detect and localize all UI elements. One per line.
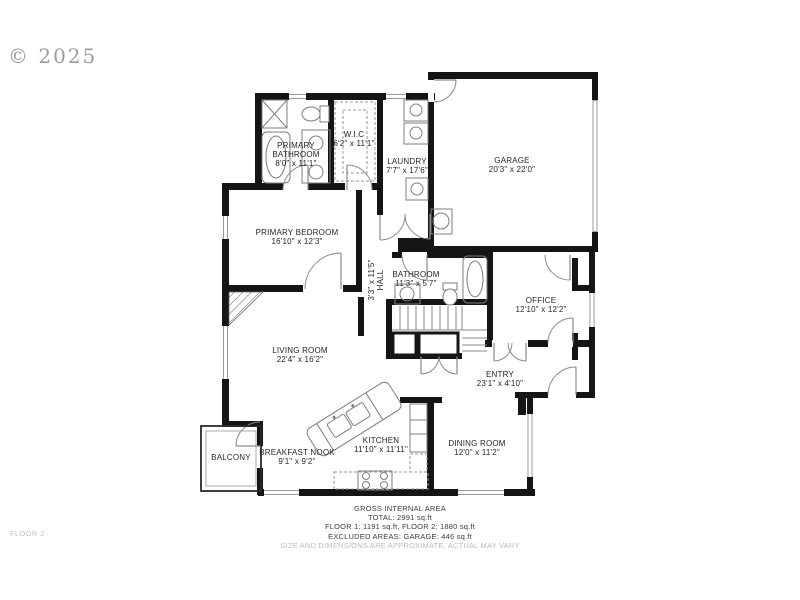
stove xyxy=(358,471,392,490)
room-label-living-room: LIVING ROOM22'4" x 16'2" xyxy=(250,346,350,364)
area-summary-total: TOTAL: 2991 sq.ft xyxy=(0,513,800,522)
area-summary-disclaimer: SIZE AND DIMENSIONS ARE APPROXIMATE, ACT… xyxy=(0,541,800,550)
window xyxy=(287,93,308,100)
window xyxy=(262,489,301,496)
window xyxy=(222,324,229,381)
area-summary-excluded: EXCLUDED AREAS: GARAGE: 446 sq.ft xyxy=(0,532,800,541)
window xyxy=(384,93,408,100)
door-garage xyxy=(428,80,456,102)
double-door-office xyxy=(492,340,528,361)
room-label-primary-bedroom: PRIMARY BEDROOM16'10" x 12'3" xyxy=(232,228,362,246)
door-primary-bedroom xyxy=(303,253,343,292)
staircase xyxy=(392,306,487,355)
door-hall-laundry xyxy=(380,214,430,240)
room-label-bathroom: BATHROOM11'3" x 5'7" xyxy=(384,270,448,288)
shower xyxy=(262,100,287,128)
room-label-wic: W.I.C6'2" x 11'1" xyxy=(319,130,389,148)
room-label-dining-room: DINING ROOM12'0" x 11'2" xyxy=(432,439,522,457)
door-office-bottom xyxy=(548,318,573,347)
room-label-entry: ENTRY23'1" x 4'10" xyxy=(455,370,545,388)
toilet-primary xyxy=(302,106,329,122)
room-label-balcony: BALCONY xyxy=(203,453,259,462)
room-label-garage: GARAGE20'3" x 22'0" xyxy=(467,156,557,174)
copyright-watermark: © 2025 xyxy=(8,44,97,68)
dryer xyxy=(404,123,428,144)
area-summary: GROSS INTERNAL AREA TOTAL: 2991 sq.ft FL… xyxy=(0,504,800,550)
understair-closets xyxy=(393,333,458,355)
washer xyxy=(404,100,428,121)
garage-door xyxy=(592,100,598,232)
room-label-laundry: LAUNDRY7'7" x 17'6" xyxy=(372,157,442,175)
area-summary-title: GROSS INTERNAL AREA xyxy=(0,504,800,513)
door-wic xyxy=(345,165,372,190)
laundry-sink xyxy=(406,178,428,200)
floorplan-page: PRIMARY BATHROOM8'0" x 11'1" W.I.C6'2" x… xyxy=(0,0,800,600)
front-door xyxy=(548,367,576,398)
hatched-corner xyxy=(229,292,263,325)
water-heater xyxy=(431,209,452,234)
window xyxy=(589,291,595,329)
bathtub-bathroom xyxy=(463,256,487,303)
room-label-hall: 3'3" x 11'5"HALL xyxy=(367,245,385,315)
window xyxy=(456,489,506,496)
door-primary-bathroom xyxy=(283,165,308,190)
window xyxy=(222,214,229,241)
door-office-top xyxy=(545,252,570,280)
room-label-office: OFFICE12'10" x 12'2" xyxy=(501,296,581,314)
area-summary-floors: FLOOR 1: 1191 sq.ft, FLOOR 2: 1880 sq.ft xyxy=(0,522,800,531)
window xyxy=(527,412,533,479)
